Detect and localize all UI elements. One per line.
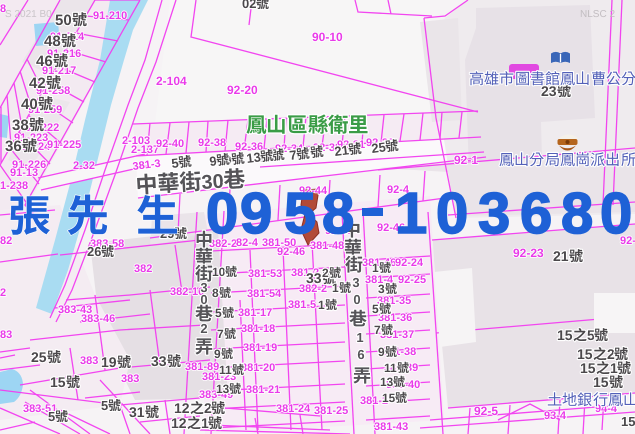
svg-text:46: 46 xyxy=(36,53,53,70)
svg-text:2-104: 2-104 xyxy=(156,74,187,88)
svg-text:91-225: 91-225 xyxy=(47,139,81,151)
svg-text:13: 13 xyxy=(380,375,394,389)
svg-text:19: 19 xyxy=(101,354,117,370)
svg-text:36: 36 xyxy=(5,138,22,155)
svg-text:381-18: 381-18 xyxy=(241,323,275,335)
svg-text:31: 31 xyxy=(129,404,145,420)
svg-text:381-24: 381-24 xyxy=(276,403,311,415)
svg-text:S 2021 B0: S 2021 B0 xyxy=(5,9,52,20)
svg-text:0: 0 xyxy=(436,181,468,246)
svg-text:92-25: 92-25 xyxy=(398,274,426,286)
svg-text:5: 5 xyxy=(101,398,108,413)
svg-text:2-32: 2-32 xyxy=(73,160,95,172)
svg-text:92-23: 92-23 xyxy=(513,246,544,260)
svg-text:2: 2 xyxy=(0,287,6,299)
svg-text:12: 12 xyxy=(171,415,187,431)
svg-text:15: 15 xyxy=(50,374,66,390)
svg-text:381-25: 381-25 xyxy=(314,405,348,417)
svg-text:2: 2 xyxy=(322,266,329,280)
svg-text:38: 38 xyxy=(12,117,29,134)
svg-text:0: 0 xyxy=(600,181,632,246)
svg-text:1: 1 xyxy=(318,298,325,312)
svg-text:92-40: 92-40 xyxy=(156,138,184,150)
svg-text:90-10: 90-10 xyxy=(312,30,343,44)
svg-text:381-19: 381-19 xyxy=(243,342,277,354)
svg-text:9: 9 xyxy=(378,345,385,359)
svg-text:13: 13 xyxy=(246,149,262,166)
svg-text:7: 7 xyxy=(374,323,381,337)
svg-text:33: 33 xyxy=(306,270,322,286)
svg-text:6: 6 xyxy=(357,347,364,362)
svg-text:383-46: 383-46 xyxy=(81,313,115,325)
svg-text:6: 6 xyxy=(520,181,552,246)
svg-text:82: 82 xyxy=(0,235,12,247)
svg-text:91-13: 91-13 xyxy=(10,167,38,179)
svg-text:11: 11 xyxy=(219,363,232,377)
svg-text:21: 21 xyxy=(334,142,350,159)
svg-text:1: 1 xyxy=(372,261,379,275)
svg-text:8: 8 xyxy=(322,181,354,246)
svg-text:91-210: 91-210 xyxy=(93,10,127,22)
svg-text:42: 42 xyxy=(29,75,46,92)
svg-text:12: 12 xyxy=(174,400,190,416)
svg-text:382: 382 xyxy=(134,263,152,275)
svg-text:21: 21 xyxy=(553,248,569,264)
svg-text:40: 40 xyxy=(21,96,38,113)
svg-text:381-17: 381-17 xyxy=(238,307,272,319)
svg-text:2: 2 xyxy=(200,321,207,336)
svg-text:383: 383 xyxy=(80,355,98,367)
svg-text:0: 0 xyxy=(206,181,238,246)
svg-text:1-238: 1-238 xyxy=(0,180,28,192)
svg-text:383: 383 xyxy=(121,373,139,385)
svg-text:3: 3 xyxy=(378,282,385,296)
svg-text:92-38: 92-38 xyxy=(198,137,226,149)
svg-text:15: 15 xyxy=(593,374,609,390)
svg-text:93-4: 93-4 xyxy=(544,410,567,422)
svg-text:1: 1 xyxy=(356,330,363,345)
svg-text:10: 10 xyxy=(212,265,226,279)
svg-text:381-5: 381-5 xyxy=(288,299,316,311)
svg-text:83: 83 xyxy=(0,329,12,341)
svg-text:26: 26 xyxy=(87,244,101,259)
svg-text:15: 15 xyxy=(621,414,635,429)
svg-text:25: 25 xyxy=(31,349,47,365)
svg-text:7: 7 xyxy=(217,327,224,341)
svg-text:9: 9 xyxy=(240,181,272,246)
svg-text:02: 02 xyxy=(242,0,256,11)
svg-text:8: 8 xyxy=(212,286,219,300)
svg-text:92-1: 92-1 xyxy=(454,153,478,167)
svg-text:381-54: 381-54 xyxy=(247,288,282,300)
svg-text:5: 5 xyxy=(48,409,55,424)
svg-text:15: 15 xyxy=(557,327,573,343)
svg-text:381-21: 381-21 xyxy=(246,384,280,396)
svg-text:1: 1 xyxy=(332,281,339,295)
svg-text:48: 48 xyxy=(44,33,61,50)
svg-text:5: 5 xyxy=(372,302,379,316)
svg-text:92-20: 92-20 xyxy=(227,83,258,97)
svg-text:15: 15 xyxy=(382,391,396,405)
svg-text:381-20: 381-20 xyxy=(241,362,275,374)
svg-text:381-53: 381-53 xyxy=(248,268,282,280)
svg-text:5: 5 xyxy=(284,181,316,246)
svg-text:92-5: 92-5 xyxy=(474,404,498,418)
svg-text:381-43: 381-43 xyxy=(374,421,408,433)
svg-text:8: 8 xyxy=(561,181,593,246)
svg-text:13: 13 xyxy=(216,382,230,396)
svg-text:25: 25 xyxy=(371,139,387,156)
svg-text:9: 9 xyxy=(214,347,221,361)
svg-text:382-10: 382-10 xyxy=(170,286,204,298)
svg-text:5: 5 xyxy=(215,306,222,320)
svg-text:92-24: 92-24 xyxy=(395,257,424,269)
svg-text:50: 50 xyxy=(55,12,72,29)
svg-text:1: 1 xyxy=(395,181,427,246)
svg-text:NLSC 2: NLSC 2 xyxy=(580,9,615,20)
svg-text:2-137: 2-137 xyxy=(131,144,159,156)
svg-text:3: 3 xyxy=(352,275,359,290)
svg-text:0: 0 xyxy=(353,292,360,307)
svg-text:3: 3 xyxy=(478,181,510,246)
svg-text:11: 11 xyxy=(384,361,397,375)
svg-text:33: 33 xyxy=(151,353,167,369)
